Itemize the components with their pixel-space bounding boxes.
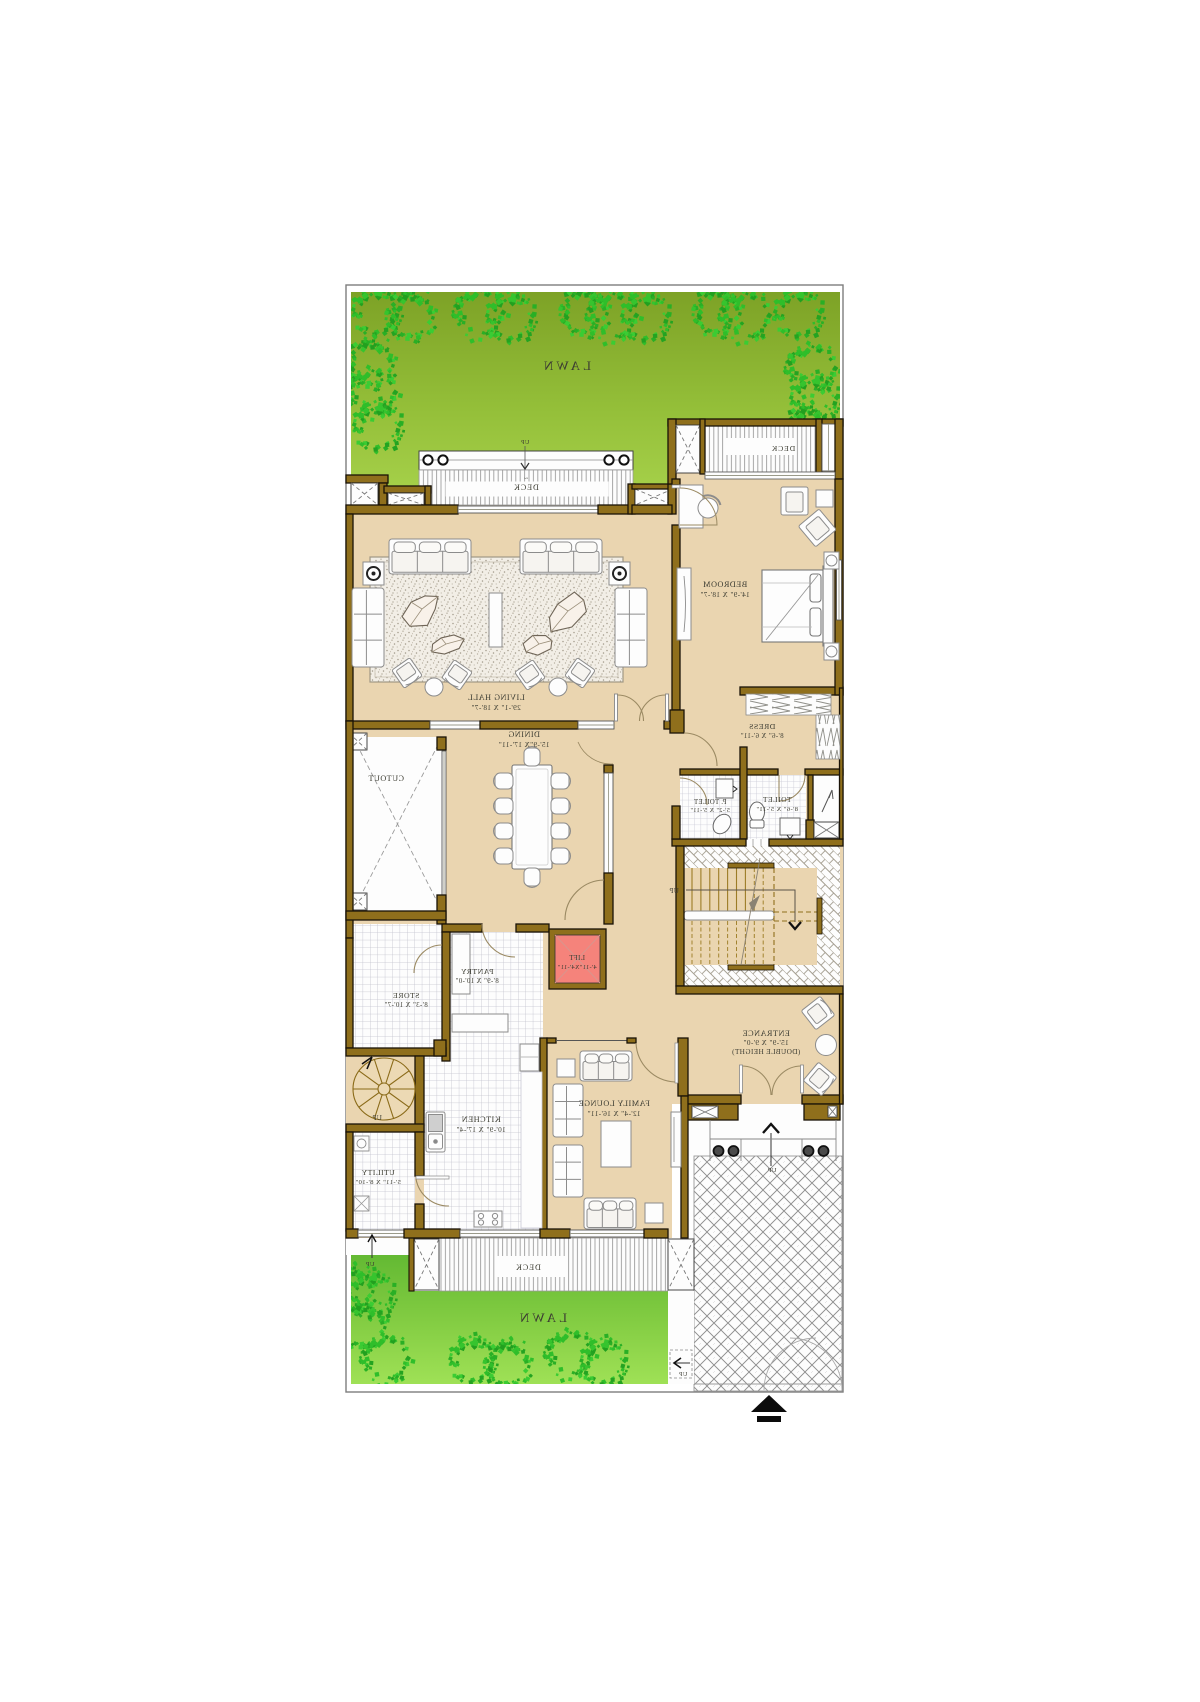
svg-text:(DOUBLE HEIGHT): (DOUBLE HEIGHT) <box>732 1048 801 1056</box>
svg-text:FAMILY LOUNGE: FAMILY LOUNGE <box>578 1099 650 1108</box>
svg-text:LAWN: LAWN <box>541 358 591 373</box>
svg-text:8'-6" X 6'-11": 8'-6" X 6'-11" <box>740 733 783 740</box>
svg-text:29'-1" X 18'-7": 29'-1" X 18'-7" <box>471 704 521 712</box>
svg-text:CUTOUT: CUTOUT <box>368 774 404 783</box>
svg-text:15'-9"X 17'-11": 15'-9"X 17'-11" <box>498 741 549 749</box>
svg-text:4'-11"X4'-11": 4'-11"X4'-11" <box>557 964 596 971</box>
svg-text:UP: UP <box>365 1261 374 1268</box>
svg-text:LAWN: LAWN <box>517 1310 567 1325</box>
svg-text:5'-11" X 8'-10": 5'-11" X 8'-10" <box>355 1179 401 1186</box>
svg-text:15'-9" X 9'-0": 15'-9" X 9'-0" <box>743 1039 789 1047</box>
svg-text:8'-9" X 10'-0": 8'-9" X 10'-0" <box>455 978 498 985</box>
svg-text:12'-4" X 16'-11": 12'-4" X 16'-11" <box>587 1110 640 1118</box>
svg-text:~: ~ <box>524 475 528 483</box>
svg-text:5'-2" X 5'-11": 5'-2" X 5'-11" <box>690 807 730 814</box>
svg-text:14'-9" X 18'-7": 14'-9" X 18'-7" <box>700 591 750 599</box>
svg-text:8'-6" X 5'-11": 8'-6" X 5'-11" <box>756 806 798 813</box>
svg-text:DECK: DECK <box>515 1263 541 1272</box>
svg-text:LIFT: LIFT <box>569 954 585 962</box>
svg-text:UP: UP <box>679 1372 688 1378</box>
svg-text:DRESS: DRESS <box>749 722 776 731</box>
svg-text:ENTRANCE: ENTRANCE <box>742 1029 790 1038</box>
svg-text:P. TOILET: P. TOILET <box>693 799 726 806</box>
svg-text:STORE: STORE <box>392 991 419 1000</box>
svg-text:UP: UP <box>767 1167 776 1174</box>
svg-text:PANTRY: PANTRY <box>460 967 493 976</box>
svg-text:DINING: DINING <box>508 730 540 739</box>
svg-text:UP: UP <box>372 1114 382 1122</box>
svg-text:DECK: DECK <box>771 444 795 453</box>
svg-text:10'-9" X 17'-4": 10'-9" X 17'-4" <box>456 1126 506 1134</box>
svg-text:KITCHEN: KITCHEN <box>461 1115 500 1124</box>
svg-text:LIVING HALL: LIVING HALL <box>467 693 525 702</box>
svg-text:BEDROOM: BEDROOM <box>703 580 748 589</box>
svg-text:8'-3" X 10'-7": 8'-3" X 10'-7" <box>384 1002 427 1009</box>
svg-text:TOILET: TOILET <box>762 795 791 804</box>
svg-text:DECK: DECK <box>513 483 539 492</box>
svg-text:UP: UP <box>521 440 530 446</box>
svg-text:UTILITY: UTILITY <box>361 1168 395 1177</box>
svg-text:UP: UP <box>669 887 679 895</box>
